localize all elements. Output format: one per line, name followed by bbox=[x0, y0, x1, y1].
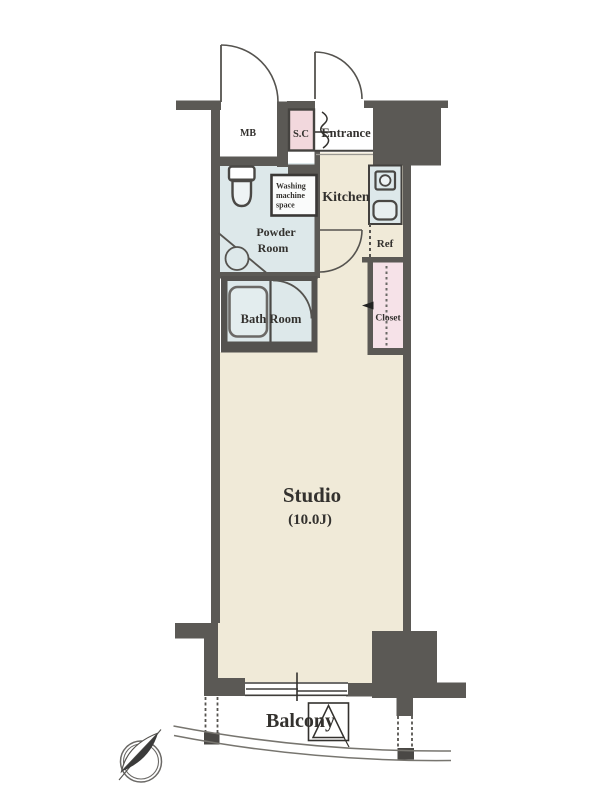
svg-text:Closet: Closet bbox=[375, 314, 401, 324]
svg-text:Entrance: Entrance bbox=[321, 126, 371, 140]
svg-text:(10.0J): (10.0J) bbox=[288, 512, 332, 528]
svg-text:Powder: Powder bbox=[256, 225, 296, 239]
svg-text:Kitchen: Kitchen bbox=[322, 190, 370, 205]
svg-text:Washing: Washing bbox=[276, 182, 306, 191]
svg-text:machine: machine bbox=[276, 191, 305, 200]
svg-text:space: space bbox=[276, 201, 295, 210]
svg-text:Room: Room bbox=[258, 241, 289, 255]
svg-text:Ref: Ref bbox=[377, 238, 394, 250]
svg-text:Studio: Studio bbox=[283, 483, 341, 507]
svg-text:S.C: S.C bbox=[293, 129, 309, 140]
svg-text:MB: MB bbox=[240, 128, 256, 139]
svg-text:Balcony: Balcony bbox=[266, 710, 335, 732]
svg-text:Bath Room: Bath Room bbox=[241, 312, 302, 326]
